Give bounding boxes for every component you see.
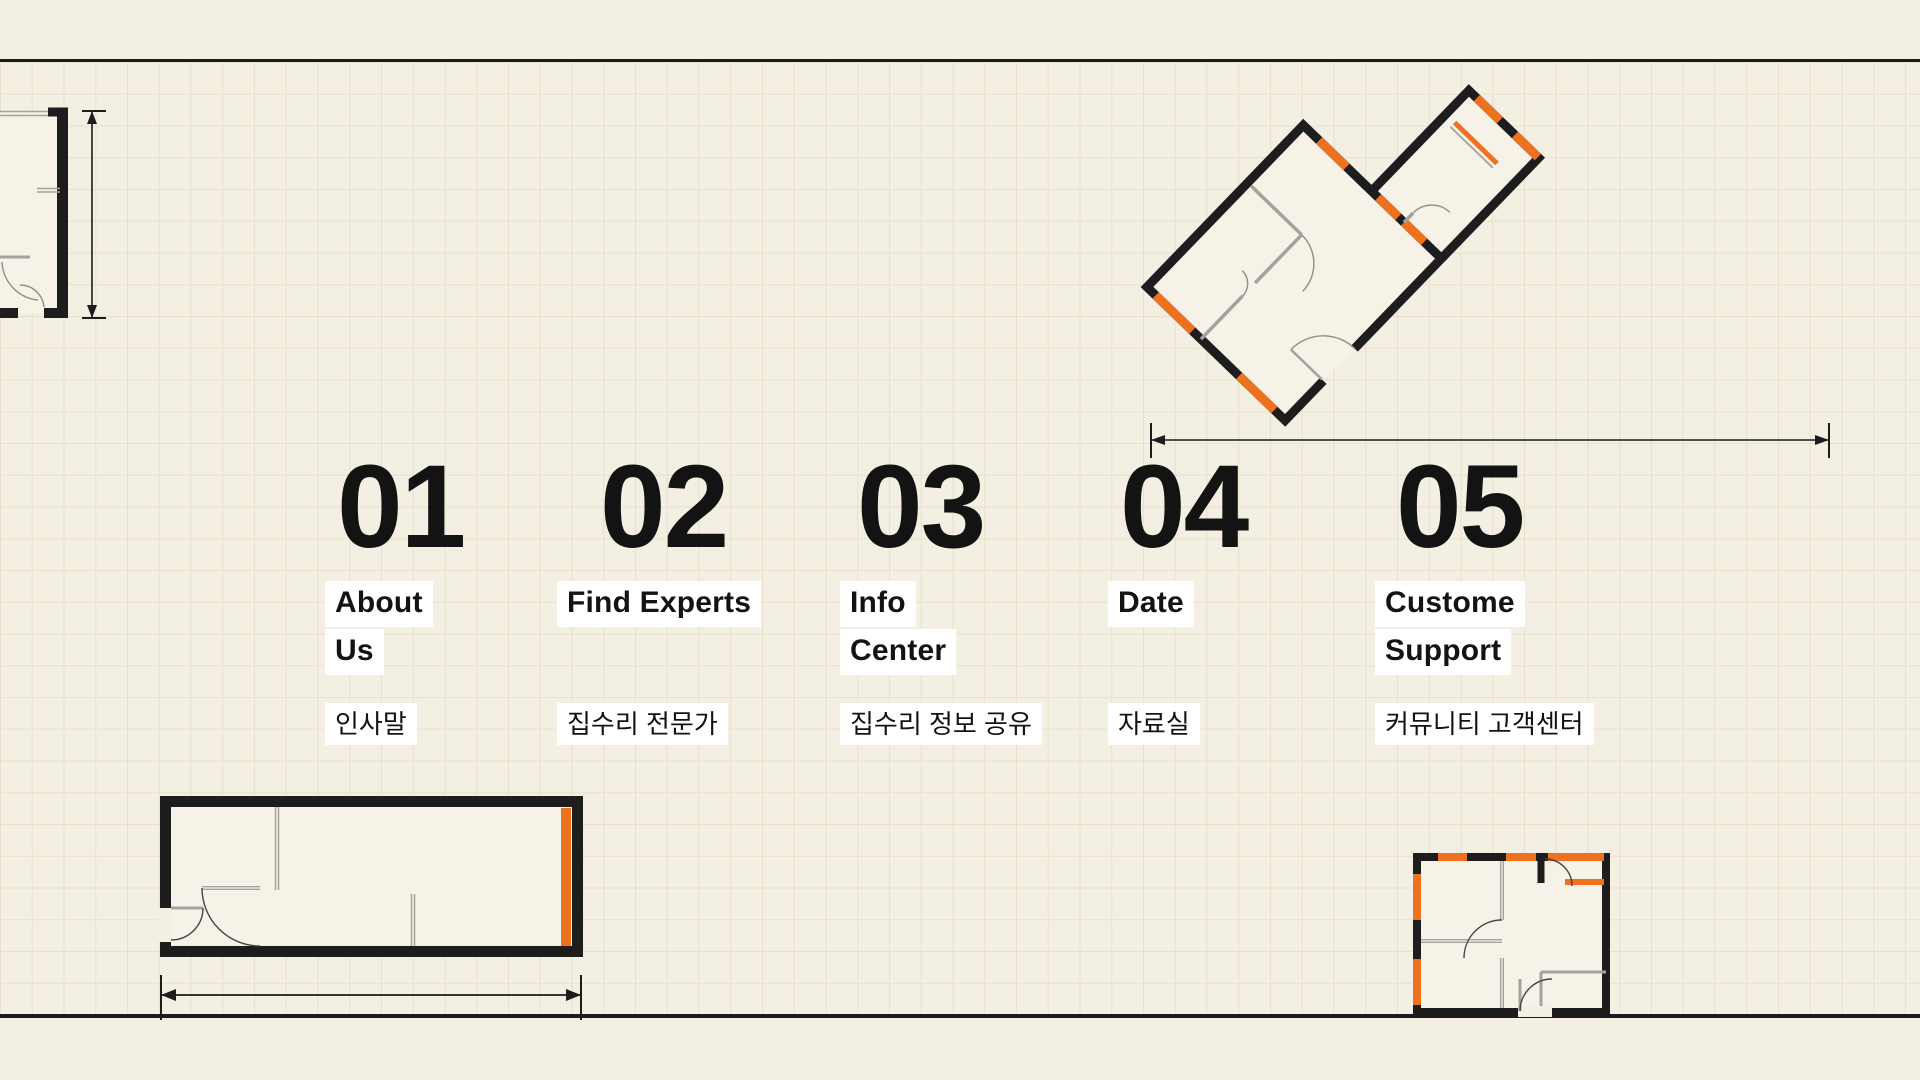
menu-item-number[interactable]: 05: [1396, 455, 1523, 559]
menu-item-find-experts[interactable]: 02 Find Experts 집수리 전문가: [567, 441, 887, 761]
menu-item-title[interactable]: Date: [1118, 581, 1194, 629]
menu-item-title-line[interactable]: Custome: [1375, 581, 1525, 627]
menu-item-subtitle: 자료실: [1118, 703, 1200, 745]
menu-item-subtitle: 집수리 전문가: [567, 703, 728, 745]
menu-item-title[interactable]: Custome Support: [1385, 581, 1525, 677]
menu-item-title-line[interactable]: Info: [840, 581, 916, 627]
menu-item-title-line[interactable]: Support: [1375, 629, 1511, 675]
dimension-line-bottom-left: [161, 975, 581, 1020]
menu-item-customer-support[interactable]: 05 Custome Support 커뮤니티 고객센터: [1385, 441, 1705, 761]
menu-item-subtitle: 집수리 정보 공유: [850, 703, 1042, 745]
menu-item-title-line[interactable]: Date: [1108, 581, 1194, 627]
menu-item-title-line[interactable]: About: [325, 581, 433, 627]
menu-item-subtitle: 커뮤니티 고객센터: [1385, 703, 1594, 745]
menu-item-number[interactable]: 02: [600, 455, 727, 559]
menu-item-title-line[interactable]: Us: [325, 629, 384, 675]
dimension-line-vertical: [82, 111, 106, 318]
menu-item-title-line[interactable]: Find Experts: [557, 581, 761, 627]
floorplan-top-right-rotated: [1100, 55, 1880, 475]
menu-item-number[interactable]: 01: [337, 455, 464, 559]
menu-item-title[interactable]: About Us: [335, 581, 433, 677]
menu-item-title-line[interactable]: Center: [840, 629, 956, 675]
menu-item-subtitle: 인사말: [335, 703, 417, 745]
landing-page: { "page": { "background_color": "#f3efe3…: [0, 0, 1920, 1080]
menu-item-title[interactable]: Find Experts: [567, 581, 761, 629]
floorplan-top-left: [0, 100, 120, 340]
menu-item-number[interactable]: 04: [1120, 455, 1247, 559]
menu-item-number[interactable]: 03: [857, 455, 984, 559]
floorplan-bottom-left: [125, 790, 605, 1035]
floorplan-bottom-right: [1398, 845, 1623, 1025]
menu-item-title[interactable]: Info Center: [850, 581, 956, 677]
